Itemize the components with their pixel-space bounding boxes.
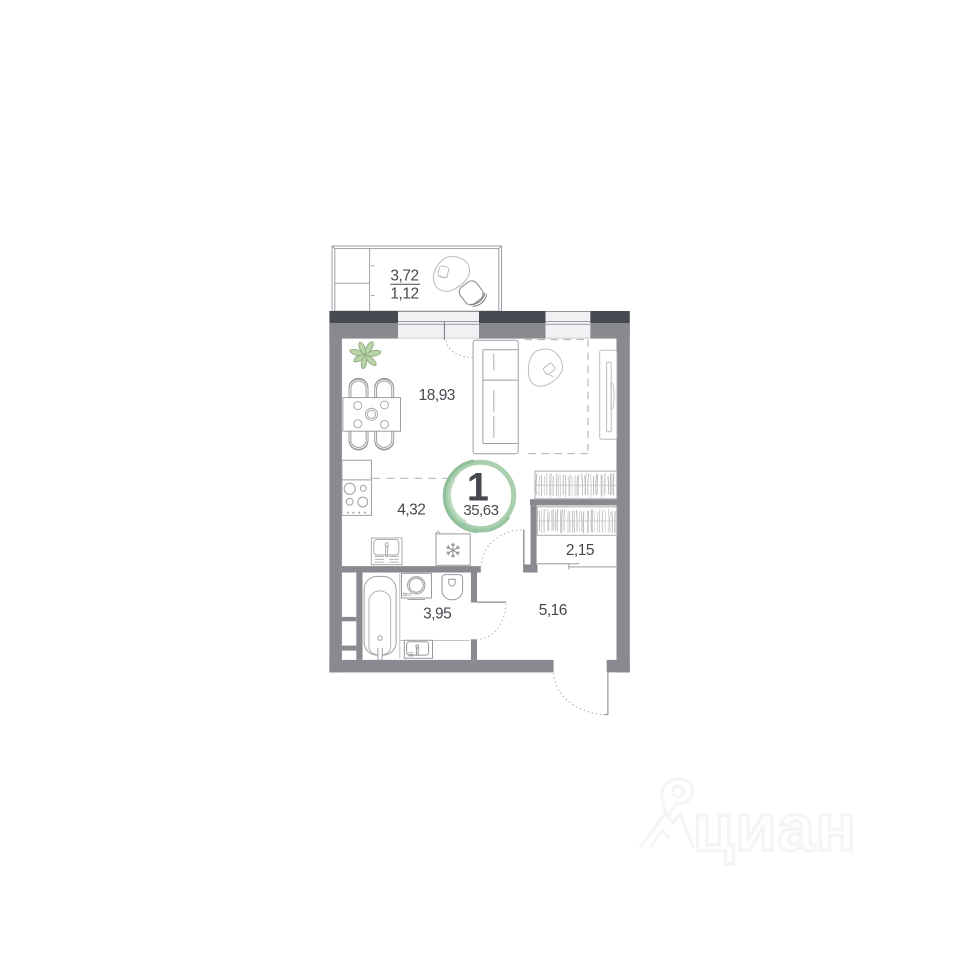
svg-text:циан: циан <box>693 791 857 866</box>
svg-text:3,72: 3,72 <box>390 267 418 284</box>
svg-text:35,63: 35,63 <box>463 502 498 519</box>
svg-text:4,32: 4,32 <box>397 501 425 518</box>
svg-text:5,16: 5,16 <box>539 602 567 619</box>
svg-text:3,95: 3,95 <box>423 606 451 623</box>
svg-text:18,93: 18,93 <box>419 387 455 404</box>
svg-text:2,15: 2,15 <box>566 542 594 559</box>
svg-text:1,12: 1,12 <box>390 286 418 303</box>
